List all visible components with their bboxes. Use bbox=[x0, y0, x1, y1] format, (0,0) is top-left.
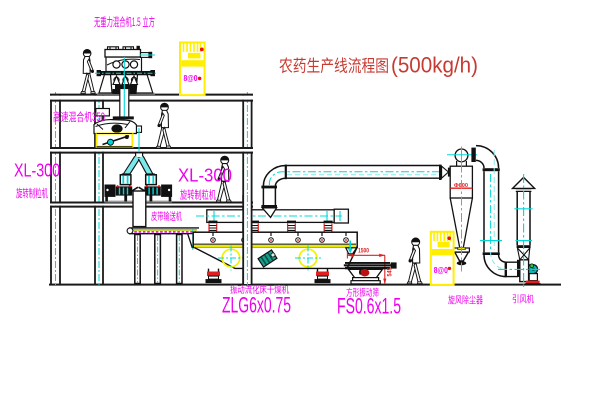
svg-text:XL-300: XL-300 bbox=[14, 161, 60, 181]
svg-text:旋转制粒机: 旋转制粒机 bbox=[180, 188, 216, 202]
svg-text:引风机: 引风机 bbox=[512, 294, 534, 306]
svg-text:旋转制粒机: 旋转制粒机 bbox=[16, 186, 48, 200]
svg-text:(500kg/h): (500kg/h) bbox=[391, 53, 478, 78]
svg-text:8@0: 8@0 bbox=[184, 73, 198, 83]
svg-text:高速混合机350: 高速混合机350 bbox=[53, 110, 105, 124]
svg-text:ZLG6x0.75: ZLG6x0.75 bbox=[222, 293, 291, 318]
svg-text:无重力混合机1.5 立方: 无重力混合机1.5 立方 bbox=[94, 15, 155, 29]
svg-text:8@0: 8@0 bbox=[434, 265, 448, 275]
svg-text:1500: 1500 bbox=[358, 249, 370, 255]
svg-text:旋风除尘器: 旋风除尘器 bbox=[448, 295, 483, 307]
svg-text:农药生产线流程图: 农药生产线流程图 bbox=[279, 57, 389, 76]
svg-text:皮带输送机: 皮带输送机 bbox=[151, 210, 182, 223]
svg-text:545: 545 bbox=[388, 267, 394, 277]
svg-text:XL-300: XL-300 bbox=[178, 166, 232, 186]
svg-text:FS0.6x1.5: FS0.6x1.5 bbox=[337, 294, 401, 319]
